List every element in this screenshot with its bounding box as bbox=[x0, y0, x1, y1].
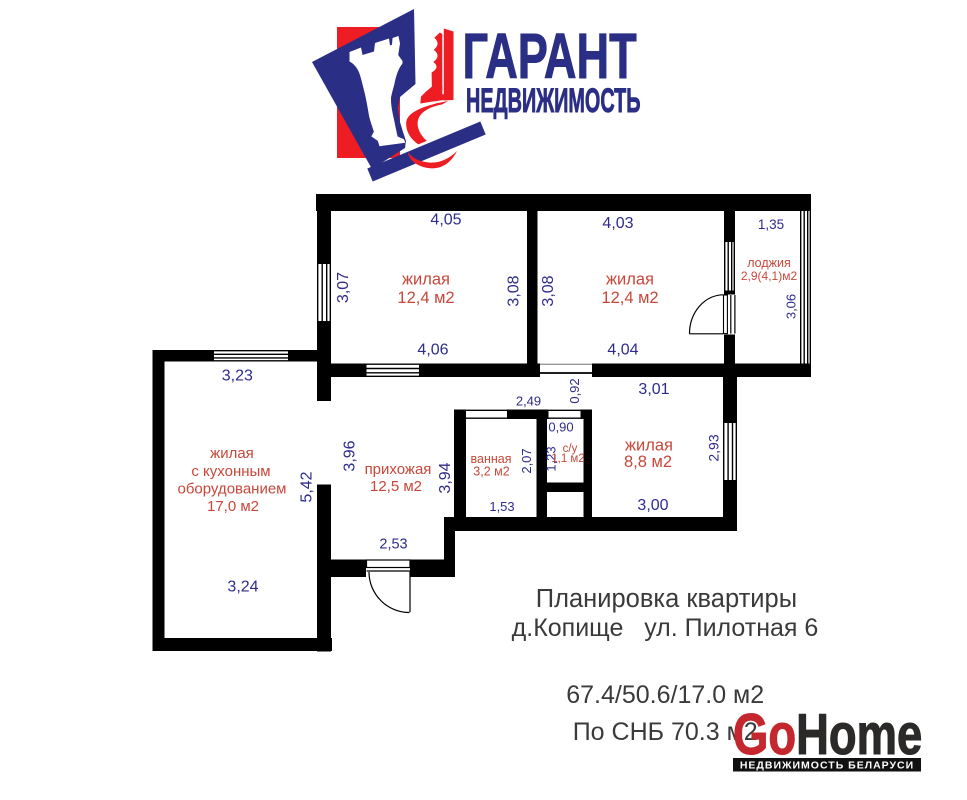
svg-text:8,8 м2: 8,8 м2 bbox=[624, 453, 672, 471]
svg-text:3,08: 3,08 bbox=[505, 275, 522, 306]
svg-text:3,23: 3,23 bbox=[222, 368, 253, 385]
svg-text:3,2 м2: 3,2 м2 bbox=[473, 465, 509, 479]
svg-text:3,94: 3,94 bbox=[437, 462, 454, 493]
svg-text:НЕДВИЖИМОСТЬ БЕЛАРУСИ: НЕДВИЖИМОСТЬ БЕЛАРУСИ bbox=[740, 760, 914, 772]
svg-text:12,5 м2: 12,5 м2 bbox=[370, 478, 422, 495]
svg-text:2,93: 2,93 bbox=[706, 434, 722, 461]
svg-text:0,92: 0,92 bbox=[567, 378, 582, 403]
svg-text:4,06: 4,06 bbox=[417, 342, 448, 359]
svg-text:12,4 м2: 12,4 м2 bbox=[601, 289, 658, 307]
svg-text:17,0 м2: 17,0 м2 bbox=[207, 498, 259, 515]
svg-text:2,07: 2,07 bbox=[519, 448, 534, 473]
svg-text:1,1 м2: 1,1 м2 bbox=[551, 453, 584, 465]
svg-text:GoHome: GoHome bbox=[733, 702, 922, 766]
svg-text:жилая: жилая bbox=[402, 271, 450, 289]
svg-text:жилая: жилая bbox=[625, 437, 673, 455]
svg-text:3,07: 3,07 bbox=[335, 272, 352, 303]
svg-text:3,08: 3,08 bbox=[540, 275, 557, 306]
svg-text:0,90: 0,90 bbox=[548, 420, 573, 435]
svg-text:4,05: 4,05 bbox=[430, 212, 461, 229]
svg-text:1,35: 1,35 bbox=[758, 217, 784, 232]
svg-text:3,06: 3,06 bbox=[784, 294, 799, 319]
svg-text:прихожая: прихожая bbox=[365, 461, 432, 478]
svg-text:НЕДВИЖИМОСТЬ: НЕДВИЖИМОСТЬ bbox=[466, 81, 641, 119]
svg-text:4,03: 4,03 bbox=[602, 215, 633, 232]
svg-text:с кухонным: с кухонным bbox=[191, 463, 270, 480]
svg-text:жилая: жилая bbox=[606, 271, 654, 289]
svg-text:д.Копище ул. Пилотная 6: д.Копище ул. Пилотная 6 bbox=[512, 614, 819, 642]
svg-text:лоджия: лоджия bbox=[747, 256, 791, 270]
svg-text:2,49: 2,49 bbox=[516, 394, 541, 409]
svg-text:оборудованием: оборудованием bbox=[177, 481, 286, 498]
svg-text:2,9(4,1)м2: 2,9(4,1)м2 bbox=[741, 269, 798, 283]
svg-text:2,53: 2,53 bbox=[379, 537, 407, 553]
svg-text:3,24: 3,24 bbox=[227, 579, 258, 596]
svg-text:3,00: 3,00 bbox=[637, 497, 668, 514]
svg-text:3,96: 3,96 bbox=[342, 440, 359, 471]
svg-text:5,42: 5,42 bbox=[299, 471, 316, 502]
svg-text:жилая: жилая bbox=[210, 445, 254, 462]
svg-text:Планировка квартиры: Планировка квартиры bbox=[536, 585, 797, 613]
svg-text:1,53: 1,53 bbox=[489, 499, 514, 514]
svg-text:По СНБ 70.3 м2: По СНБ 70.3 м2 bbox=[573, 718, 758, 746]
svg-text:12,4 м2: 12,4 м2 bbox=[397, 289, 454, 307]
svg-text:4,04: 4,04 bbox=[607, 342, 638, 359]
svg-text:3,01: 3,01 bbox=[638, 381, 669, 398]
